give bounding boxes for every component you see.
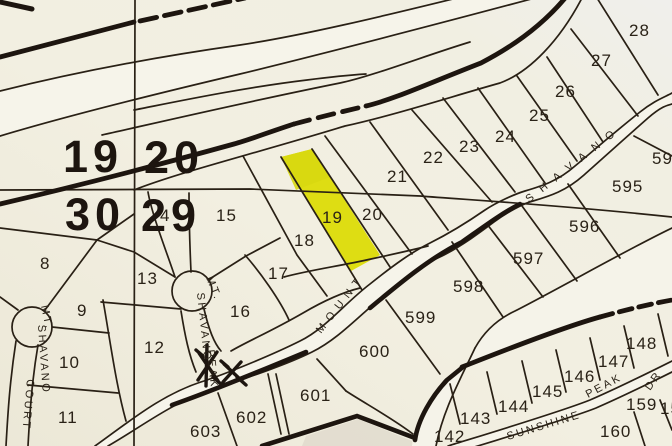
svg-text:18: 18: [294, 231, 315, 250]
svg-text:30: 30: [65, 189, 125, 240]
svg-text:603: 603: [190, 422, 221, 441]
svg-text:597: 597: [513, 249, 544, 268]
svg-text:20: 20: [362, 205, 383, 224]
svg-text:143: 143: [460, 409, 491, 428]
svg-text:8: 8: [40, 254, 50, 273]
svg-text:27: 27: [591, 51, 612, 70]
svg-text:600: 600: [359, 342, 390, 361]
svg-text:19: 19: [322, 208, 343, 227]
svg-text:11: 11: [58, 408, 78, 427]
svg-text:29: 29: [141, 190, 201, 241]
svg-text:9: 9: [77, 301, 87, 320]
svg-text:28: 28: [629, 21, 650, 40]
svg-text:15: 15: [216, 206, 237, 225]
svg-text:599: 599: [405, 308, 436, 327]
svg-text:10: 10: [59, 353, 80, 372]
svg-text:13: 13: [137, 269, 158, 288]
svg-text:147: 147: [598, 352, 629, 371]
svg-text:19: 19: [63, 131, 123, 182]
svg-text:26: 26: [555, 82, 576, 101]
svg-text:596: 596: [569, 217, 600, 236]
svg-text:12: 12: [144, 338, 165, 357]
svg-text:20: 20: [144, 132, 204, 183]
svg-text:4: 4: [160, 206, 170, 225]
svg-text:602: 602: [236, 408, 267, 427]
svg-text:17: 17: [268, 264, 289, 283]
svg-text:142: 142: [434, 427, 465, 446]
svg-text:22: 22: [423, 148, 444, 167]
svg-text:16: 16: [230, 302, 251, 321]
svg-text:160: 160: [600, 422, 631, 441]
svg-text:598: 598: [453, 277, 484, 296]
svg-text:148: 148: [626, 334, 657, 353]
svg-text:23: 23: [459, 137, 480, 156]
svg-text:21: 21: [387, 167, 408, 186]
svg-text:595: 595: [612, 177, 643, 196]
svg-text:146: 146: [564, 367, 595, 386]
svg-text:25: 25: [529, 106, 550, 125]
svg-text:15: 15: [660, 399, 672, 418]
svg-text:145: 145: [532, 382, 563, 401]
svg-text:144: 144: [498, 397, 529, 416]
svg-text:59: 59: [652, 149, 672, 168]
svg-text:159: 159: [626, 395, 657, 414]
svg-text:601: 601: [300, 386, 331, 405]
svg-text:24: 24: [495, 127, 516, 146]
